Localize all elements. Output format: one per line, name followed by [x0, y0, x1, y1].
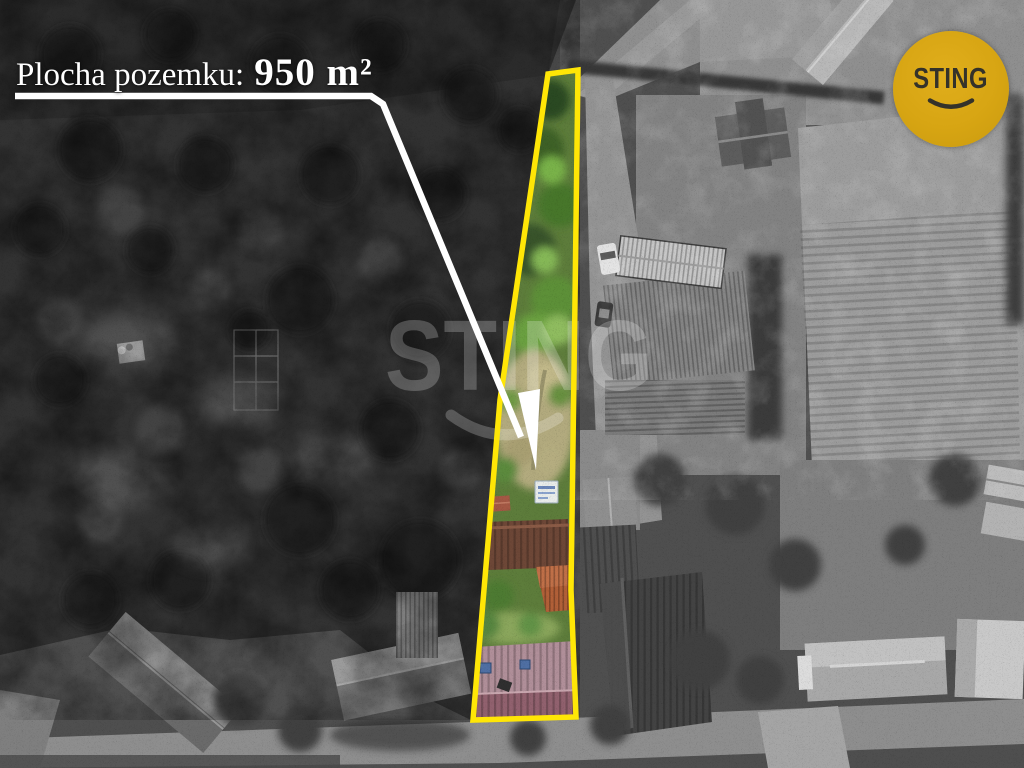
area-label-prefix: Plocha pozemku:: [16, 57, 244, 94]
area-label: Plocha pozemku: 950 m²: [16, 50, 373, 95]
logo-smile-icon: [926, 97, 976, 114]
aerial-photo: STING: [0, 0, 1024, 768]
real-estate-aerial-image: STING Plocha pozemku: 950 m² STING: [0, 0, 1024, 768]
area-label-value: 950 m²: [254, 50, 372, 95]
sting-logo: STING: [893, 31, 1009, 147]
sting-logo-text: STING: [914, 65, 989, 94]
